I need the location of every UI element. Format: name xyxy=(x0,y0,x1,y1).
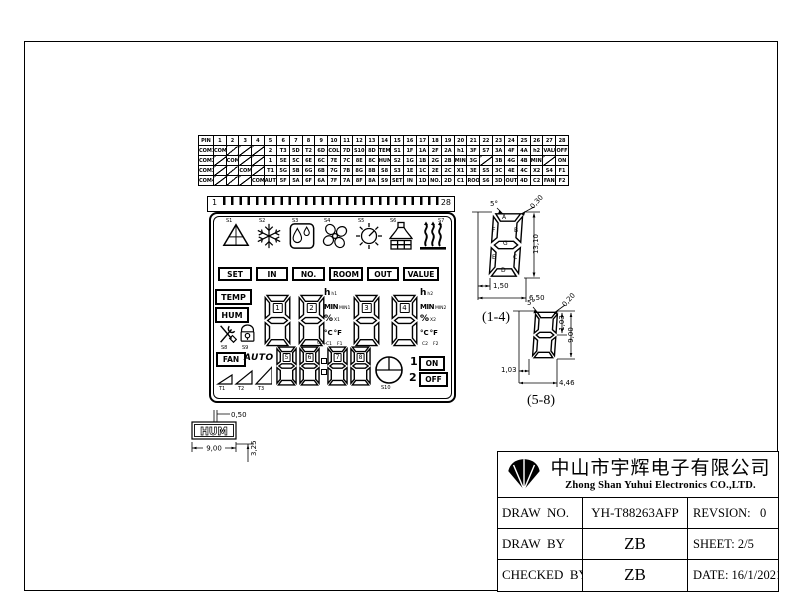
draw-no-value: YH-T88263AFP xyxy=(582,498,688,528)
pin-segment-cell: 1D xyxy=(416,176,429,186)
pin-segment-cell: 2B xyxy=(442,156,455,166)
fpc-connector-strip: 1 28 xyxy=(207,196,455,212)
date-value: DATE: 16/1/2021 xyxy=(688,560,778,590)
pin-segment-cell xyxy=(226,166,239,176)
pin-segment-cell: 5C xyxy=(290,156,303,166)
seven-segment-outline xyxy=(327,346,348,386)
symbol-s4-label: S4 xyxy=(324,218,330,224)
triangle-bars-icon xyxy=(216,366,272,386)
fan-blades-icon xyxy=(320,221,350,251)
pin-segment-cell: SET xyxy=(391,176,404,186)
pin-segment-cell: HUM xyxy=(378,156,391,166)
connector-pads xyxy=(223,197,439,205)
com-row-header: COM3 xyxy=(199,166,214,176)
off-segment: OFF xyxy=(419,372,448,387)
pin-segment-cell: 6E xyxy=(302,156,315,166)
pin-segment-cell: S1 xyxy=(391,146,404,156)
title-block-row: DRAW BY ZB SHEET: 2/5 xyxy=(498,528,778,559)
pin-segment-cell: 6F xyxy=(302,176,315,186)
pin-segment-cell: X2 xyxy=(530,166,543,176)
pin-segment-cell: S9 xyxy=(378,176,391,186)
company-names: 中山市宇辉电子有限公司 Zhong Shan Yuhui Electronics… xyxy=(543,457,778,492)
pin-header-cell: 21 xyxy=(467,136,480,146)
pin-segment-cell: 7E xyxy=(328,156,341,166)
celsius-segment-id: C2 xyxy=(422,342,428,347)
pin-segment-cell: S7 xyxy=(480,146,493,156)
out-segment: OUT xyxy=(367,267,399,281)
seven-segment-outline xyxy=(298,294,325,347)
title-block-header: 中山市宇辉电子有限公司 Zhong Shan Yuhui Electronics… xyxy=(498,452,778,498)
digit-position-1: 1 xyxy=(264,294,291,347)
min-segment-id: MIN2 xyxy=(435,306,446,311)
pin-segment-cell: 2G xyxy=(429,156,442,166)
seven-segment-outline xyxy=(391,294,418,347)
pin-header-cell: PIN xyxy=(199,136,214,146)
hour-segment-id: h2 xyxy=(427,292,433,297)
percent-segment: % xyxy=(324,315,333,324)
min-segment-id: MIN1 xyxy=(339,306,350,311)
pin-header-cell: 4 xyxy=(252,136,265,146)
pin-segment-cell: 7D xyxy=(340,146,353,156)
pin-header-cell: 23 xyxy=(492,136,505,146)
pin-segment-cell: 6B xyxy=(315,166,328,176)
heat-icon xyxy=(418,221,448,251)
pin-header-cell: 22 xyxy=(480,136,493,146)
pin-segment-cell: X1 xyxy=(454,166,467,176)
pin-segment-cell: 1F xyxy=(404,146,417,156)
pin-header-cell: 1 xyxy=(214,136,227,146)
pin-segment-cell: T3 xyxy=(277,146,290,156)
com-row-header: COM4 xyxy=(199,176,214,186)
pin-segment-cell: 5B xyxy=(290,166,303,176)
value-segment: VALUE xyxy=(403,267,439,281)
pin-segment-cell: COM2 xyxy=(226,156,239,166)
pin-header-cell: 27 xyxy=(543,136,556,146)
draw-by-label: DRAW BY xyxy=(498,529,582,559)
pin-header-cell: 5 xyxy=(264,136,277,146)
pin-segment-cell: OFF xyxy=(556,146,569,156)
symbol-s10-label: S10 xyxy=(381,386,391,391)
pin-header-cell: 15 xyxy=(391,136,404,146)
dim-angle: 5° xyxy=(490,200,498,208)
lcd-viewing-area: S1 S2 S3 S4 xyxy=(213,216,452,399)
pin-segment-cell xyxy=(226,146,239,156)
pin-segment-cell: 4C xyxy=(518,166,531,176)
digit-position-8: 8 xyxy=(350,346,371,386)
digit-number: 8 xyxy=(356,353,365,362)
revision-value: REVSION: 0 xyxy=(688,498,778,528)
pin-segment-cell: F1 xyxy=(556,166,569,176)
pin-segment-cell: S5 xyxy=(480,166,493,176)
fahrenheit-segment: °F xyxy=(430,329,438,337)
pin-segment-cell: 1B xyxy=(416,156,429,166)
pin-segment-cell: 6D xyxy=(315,146,328,156)
digit-position-7: 7 xyxy=(327,346,348,386)
pin-start-label: 1 xyxy=(212,198,217,208)
draw-by-value: ZB xyxy=(582,529,688,559)
pin-segment-cell: 3E xyxy=(467,166,480,176)
pin-segment-cell: 5G xyxy=(277,166,290,176)
dim-width: 4,46 xyxy=(559,379,575,387)
hour-segment-id: h1 xyxy=(331,292,337,297)
digit-position-4: 4 xyxy=(391,294,418,347)
hood-icon xyxy=(386,221,416,251)
pin-segment-cell: MIN1 xyxy=(454,156,467,166)
symbol-s7-label: S7 xyxy=(438,218,444,224)
dim-angle: 5° xyxy=(527,299,535,307)
pin-segment-cell: 5E xyxy=(277,156,290,166)
title-block-row: CHECKED BY ZB DATE: 16/1/2021 xyxy=(498,559,778,590)
hum-stroke-width: 0,50 xyxy=(231,411,247,419)
celsius-segment: °C xyxy=(324,329,333,337)
pin-segment-cell: 1A xyxy=(416,146,429,156)
pin-segment-cell: 7A xyxy=(340,176,353,186)
pin-segment-cell: 2 xyxy=(264,146,277,156)
pin-segment-cell: 5D xyxy=(290,146,303,156)
pin-segment-cell: 8A xyxy=(366,176,379,186)
symbol-s2: S2 xyxy=(255,221,283,251)
digit-number: 4 xyxy=(399,303,409,313)
pin-segment-cell: 8E xyxy=(353,156,366,166)
seven-segment-outline xyxy=(353,294,380,347)
drawing-sheet: PIN1234567891011121314151617181920212223… xyxy=(0,0,800,608)
fahrenheit-segment: °F xyxy=(334,329,342,337)
symbol-s10 xyxy=(374,355,404,389)
pin-segment-cell: AUTO xyxy=(264,176,277,186)
dimension-drawing-5-8: 5° 0,20 1,03 9,00 1,03 4,46 (5-8) xyxy=(505,299,603,411)
pin-segment-cell xyxy=(239,146,252,156)
title-block-row: DRAW NO. YH-T88263AFP REVSION: 0 xyxy=(498,498,778,528)
percent-segment-id: X1 xyxy=(334,318,340,323)
pin-segment-cell: 8C xyxy=(366,156,379,166)
pin-segment-cell: 2E xyxy=(429,166,442,176)
hum-detail-graphics: HUM 0,50 9,00 3,25 xyxy=(186,404,262,464)
digit-number: 6 xyxy=(305,353,314,362)
temp-segment: TEMP xyxy=(215,289,252,305)
pin-segment-cell xyxy=(252,166,265,176)
sun-icon xyxy=(354,221,384,251)
hum-segment: HUM xyxy=(215,307,249,323)
dim-seg-width: 1,50 xyxy=(493,282,509,290)
triangle-t2-label: T2 xyxy=(238,387,244,392)
pin-header-cell: 16 xyxy=(404,136,417,146)
triangle-t3-label: T3 xyxy=(258,387,264,392)
pin-segment-cell: 8D xyxy=(366,146,379,156)
pin-segment-cell: S3 xyxy=(391,166,404,176)
pin-segment-cell: S8 xyxy=(378,166,391,176)
pin-segment-cell xyxy=(252,146,265,156)
pin-segment-cell: h2 xyxy=(530,146,543,156)
sheet-value: SHEET: 2/5 xyxy=(688,529,778,559)
symbol-s9-label: S9 xyxy=(242,346,248,351)
pin-segment-cell: COM1 xyxy=(214,146,227,156)
digit-position-6: 6 xyxy=(299,346,320,386)
pin-segment-cell: 4D xyxy=(518,176,531,186)
company-name-en: Zhong Shan Yuhui Electronics CO.,LTD. xyxy=(543,480,778,492)
no-segment: NO. xyxy=(292,267,325,281)
company-logo-icon xyxy=(505,458,543,491)
pin-segment-cell: T2 xyxy=(302,146,315,156)
pin-segment-cell: 2D xyxy=(442,176,455,186)
pin-segment-cell xyxy=(543,156,556,166)
pin-segment-cell: 8F xyxy=(353,176,366,186)
unit-stack-right: hh2 MINMIN2 %X2 °C°F C2F2 xyxy=(420,289,446,351)
pin-segment-cell: 1C xyxy=(416,166,429,176)
com-row-header: COM1 xyxy=(199,146,214,156)
pin-header-cell: 3 xyxy=(239,136,252,146)
pin-segment-cell: 7F xyxy=(328,176,341,186)
unit-stack-mid: hh1 MINMIN1 %X1 °C°F C1F1 xyxy=(324,289,350,351)
hum-height: 3,25 xyxy=(250,440,258,456)
com-row-header: COM2 xyxy=(199,156,214,166)
pin-header-cell: 6 xyxy=(277,136,290,146)
timer-on-number: 1 xyxy=(410,356,418,367)
pin-segment-cell: MIN2 xyxy=(530,156,543,166)
pin-segment-cell: C1 xyxy=(454,176,467,186)
pin-header-cell: 8 xyxy=(302,136,315,146)
pin-segment-cell xyxy=(239,156,252,166)
checked-by-label: CHECKED BY xyxy=(498,560,582,590)
pin-segment-cell: IN xyxy=(404,176,417,186)
pin-segment-cell: 8G xyxy=(353,166,366,176)
digit-number: 2 xyxy=(306,303,316,313)
pin-segment-cell xyxy=(252,156,265,166)
pin-segment-cell xyxy=(226,176,239,186)
pin-segment-cell: 7C xyxy=(340,156,353,166)
symbol-s1: S1 xyxy=(222,221,250,249)
pin-segment-cell: 5F xyxy=(277,176,290,186)
set-segment: SET xyxy=(218,267,252,281)
pin-segment-cell: 3D xyxy=(492,176,505,186)
pin-segment-cell: 4G xyxy=(505,156,518,166)
pin-segment-cell: h1 xyxy=(454,146,467,156)
pin-segment-cell: 6G xyxy=(302,166,315,176)
pin-segment-cell xyxy=(239,176,252,186)
pin-segment-cell: NO. xyxy=(429,176,442,186)
pin-segment-cell: 5A xyxy=(290,176,303,186)
pin-segment-cell: 4B xyxy=(518,156,531,166)
dim-height: 9,00 xyxy=(567,327,575,343)
pin-header-cell: 19 xyxy=(442,136,455,146)
in-segment: IN xyxy=(256,267,288,281)
pin-header-cell: 20 xyxy=(454,136,467,146)
clock-icon xyxy=(374,355,404,385)
pin-segment-cell: S10 xyxy=(353,146,366,156)
pin-segment-cell: COM4 xyxy=(252,176,265,186)
min-segment: MIN xyxy=(420,303,434,311)
symbol-s6-label: S6 xyxy=(390,218,396,224)
fahrenheit-segment-id: F2 xyxy=(433,342,438,347)
pin-header-cell: 26 xyxy=(530,136,543,146)
symbol-s7: S7 xyxy=(418,221,448,251)
digit-number: 1 xyxy=(272,303,282,313)
pin-segment-cell: 4F xyxy=(505,146,518,156)
symbol-s3-label: S3 xyxy=(292,218,298,224)
lcd-glass-outline: S1 S2 S3 S4 xyxy=(209,212,456,403)
pin-header-cell: 18 xyxy=(429,136,442,146)
symbol-s3: S3 xyxy=(288,221,316,251)
droplets-icon xyxy=(288,221,316,251)
dim-height: 13,10 xyxy=(532,234,540,254)
digit-number: 3 xyxy=(361,303,371,313)
tools-icon xyxy=(217,323,237,345)
symbol-s5-label: S5 xyxy=(358,218,364,224)
triangle-t1-label: T1 xyxy=(219,387,225,392)
pin-header-cell: 11 xyxy=(340,136,353,146)
pin-header-cell: 12 xyxy=(353,136,366,146)
pin-segment-cell: C2 xyxy=(530,176,543,186)
pin-segment-cell: TEMP xyxy=(378,146,391,156)
pin-segment-cell: 4E xyxy=(505,166,518,176)
seven-segment-outline xyxy=(350,346,371,386)
pin-segment-cell: 3B xyxy=(492,156,505,166)
pin-segment-cell: 1 xyxy=(264,156,277,166)
pin-header-cell: 28 xyxy=(556,136,569,146)
fan-segment: FAN xyxy=(216,352,246,367)
pin-header-cell: 17 xyxy=(416,136,429,146)
timer-off-number: 2 xyxy=(409,372,417,383)
symbol-s1-label: S1 xyxy=(226,218,232,224)
digit-position-2: 2 xyxy=(298,294,325,347)
draw-no-label: DRAW NO. xyxy=(498,498,582,528)
percent-segment: % xyxy=(420,315,429,324)
on-segment: ON xyxy=(419,356,445,371)
celsius-segment: °C xyxy=(420,329,429,337)
symbol-s4: S4 xyxy=(320,221,350,251)
company-name-cn: 中山市宇辉电子有限公司 xyxy=(543,457,778,480)
pin-segment-cell: 6A xyxy=(315,176,328,186)
pin-header-cell: 25 xyxy=(518,136,531,146)
pin-segment-cell: F2 xyxy=(556,176,569,186)
digit-position-3: 3 xyxy=(353,294,380,347)
pin-segment-cell: 7B xyxy=(340,166,353,176)
hum-detail-label: HUM xyxy=(200,426,228,438)
pin-segment-cell: COM3 xyxy=(239,166,252,176)
room-segment: ROOM xyxy=(329,267,363,281)
pin-segment-cell: 6C xyxy=(315,156,328,166)
checked-by-value: ZB xyxy=(582,560,688,590)
auto-segment: AUTO xyxy=(244,353,274,363)
dim-caption-5-8: (5-8) xyxy=(527,393,555,409)
pin-segment-cell: T1 xyxy=(264,166,277,176)
hour-segment: h xyxy=(420,289,426,298)
triangle-icon xyxy=(222,221,250,249)
pin-segment-cell: ROOM xyxy=(467,176,480,186)
pin-segment-cell: 2A xyxy=(442,146,455,156)
pin-header-cell: 13 xyxy=(366,136,379,146)
pin-segment-cell xyxy=(214,156,227,166)
pin-segment-cell: 3A xyxy=(492,146,505,156)
mode-label-row: SET IN NO. ROOM OUT VALUE xyxy=(218,267,439,281)
pin-assignment-table: PIN1234567891011121314151617181920212223… xyxy=(198,135,569,182)
seven-segment-outline xyxy=(276,346,297,386)
pin-segment-cell: VALUE xyxy=(543,146,556,156)
pin-header-cell: 14 xyxy=(378,136,391,146)
pin-segment-cell: 2C xyxy=(442,166,455,176)
pin-segment-cell: 3G xyxy=(467,156,480,166)
hum-detail-drawing: HUM 0,50 9,00 3,25 xyxy=(186,404,262,464)
symbol-s5: S5 xyxy=(354,221,384,251)
digit-number: 5 xyxy=(282,353,291,362)
pin-segment-cell: 4A xyxy=(518,146,531,156)
pin-segment-cell: 8B xyxy=(366,166,379,176)
pin-header-cell: 24 xyxy=(505,136,518,146)
symbol-s2-label: S2 xyxy=(259,218,265,224)
pin-header-cell: 2 xyxy=(226,136,239,146)
seven-segment-outline xyxy=(264,294,291,347)
percent-segment-id: X2 xyxy=(430,318,436,323)
pin-segment-cell: S2 xyxy=(391,156,404,166)
lock-icon xyxy=(239,323,256,344)
pin-segment-cell: 3C xyxy=(492,166,505,176)
pin-segment-cell: 1E xyxy=(404,166,417,176)
pin-segment-cell: FAN xyxy=(543,176,556,186)
seven-segment-outline xyxy=(299,346,320,386)
pin-segment-cell: OUT xyxy=(505,176,518,186)
pin-segment-cell: COL xyxy=(328,146,341,156)
title-block: 中山市宇辉电子有限公司 Zhong Shan Yuhui Electronics… xyxy=(497,451,779,592)
pin-segment-cell xyxy=(480,156,493,166)
colon-label: COL xyxy=(317,341,326,346)
pin-segment-cell: 1G xyxy=(404,156,417,166)
digit-number: 7 xyxy=(333,353,342,362)
pin-end-label: 28 xyxy=(441,198,451,208)
min-segment: MIN xyxy=(324,303,338,311)
pin-table: PIN1234567891011121314151617181920212223… xyxy=(198,135,569,186)
digit-position-5: 5 xyxy=(276,346,297,386)
dim-seg-width: 1,03 xyxy=(501,366,517,374)
pin-segment-cell: 7G xyxy=(328,166,341,176)
pin-segment-cell: ON xyxy=(556,156,569,166)
pin-header-cell: 10 xyxy=(328,136,341,146)
pin-segment-cell xyxy=(214,166,227,176)
pin-segment-cell: 2F xyxy=(429,146,442,156)
pin-header-cell: 9 xyxy=(315,136,328,146)
hour-segment: h xyxy=(324,289,330,298)
snowflake-icon xyxy=(255,221,283,251)
dim-seg-height: 1,03 xyxy=(558,315,566,331)
pin-segment-cell: 3F xyxy=(467,146,480,156)
symbol-s8-label: S8 xyxy=(221,346,227,351)
pin-segment-cell xyxy=(214,176,227,186)
pin-segment-cell: S4 xyxy=(543,166,556,176)
pin-segment-cell: S6 xyxy=(480,176,493,186)
hum-width: 9,00 xyxy=(206,445,222,453)
symbol-s6: S6 xyxy=(386,221,416,251)
pin-header-cell: 7 xyxy=(290,136,303,146)
